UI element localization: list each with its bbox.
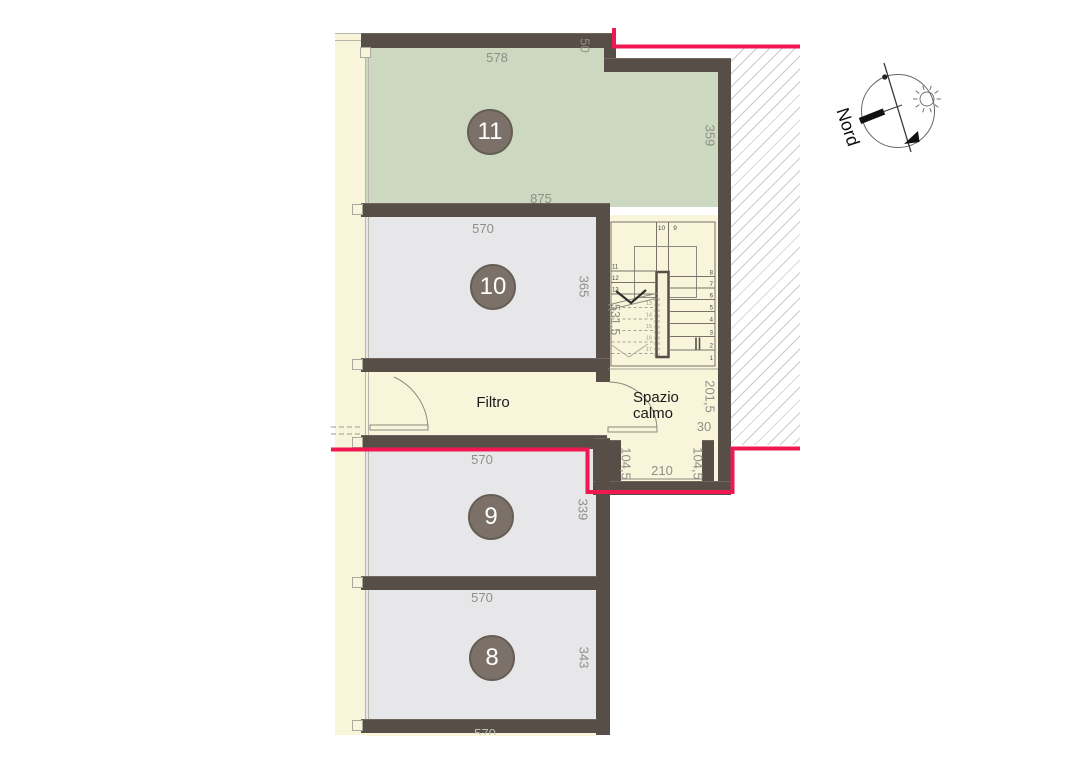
room-11-fill-right [604, 70, 718, 207]
floor-plan-canvas: 10 9 11 12 13 13 14 15 16 17 8 7 6 5 4 [0, 0, 1076, 780]
wall-9-8 [361, 576, 597, 590]
wall-corridor-bottom [361, 435, 607, 449]
dim-vestibule-center: 210 [637, 463, 687, 478]
room-badge-11: 11 [467, 109, 513, 155]
jamb-bracket [360, 47, 371, 58]
red-line-top [614, 28, 800, 47]
dim-room11-top: 578 [447, 50, 547, 65]
jamb-bracket [352, 437, 363, 448]
label-spazio-calmo: Spazio calmo [633, 390, 703, 421]
wall-vestibule-bottom [593, 481, 731, 495]
balcony-edge-line [335, 33, 363, 41]
dim-bottom-partial: 570 [430, 727, 540, 735]
stair-room-fill [608, 215, 718, 370]
dim-room9-top: 570 [432, 452, 532, 467]
label-filtro: Filtro [443, 395, 543, 411]
jamb-bracket [352, 359, 363, 370]
dim-spazio-right: 201,5 [703, 378, 718, 416]
jamb-bracket [352, 577, 363, 588]
wall-top [361, 33, 606, 48]
window-front-line [365, 48, 369, 721]
room-badge-9: 9 [468, 494, 514, 540]
wall-rooms-east [596, 438, 610, 735]
dim-room11-bottom: 875 [491, 191, 591, 206]
dim-room10-right: 365 [577, 274, 592, 300]
wall-stair-west [596, 203, 610, 382]
dim-room11-step: 50 [578, 33, 593, 59]
dim-room9-right: 339 [576, 497, 591, 523]
wall-east [718, 58, 731, 495]
room-badge-8: 8 [469, 635, 515, 681]
sun-icon [913, 86, 941, 113]
dim-room11-right: 359 [703, 123, 718, 149]
wall-corridor-top [361, 358, 610, 372]
jamb-bracket [352, 204, 363, 215]
dim-room8-top: 570 [432, 590, 532, 605]
label-spazio-line2: calmo [633, 406, 703, 422]
wall-top-right [604, 58, 731, 72]
jamb-bracket [352, 720, 363, 731]
dim-room10-top: 570 [433, 221, 533, 236]
compass-icon [860, 63, 941, 152]
exterior-hatch-area [731, 48, 800, 445]
dim-vestibule-left: 104,5 [619, 443, 634, 485]
dim-spazio-offset: 30 [692, 419, 716, 434]
room-badge-10: 10 [470, 264, 516, 310]
label-nord: Nord [833, 103, 864, 150]
label-spazio-line1: Spazio [633, 390, 703, 406]
dim-room8-right: 343 [577, 645, 592, 671]
dim-vestibule-right: 104,5 [691, 443, 706, 485]
